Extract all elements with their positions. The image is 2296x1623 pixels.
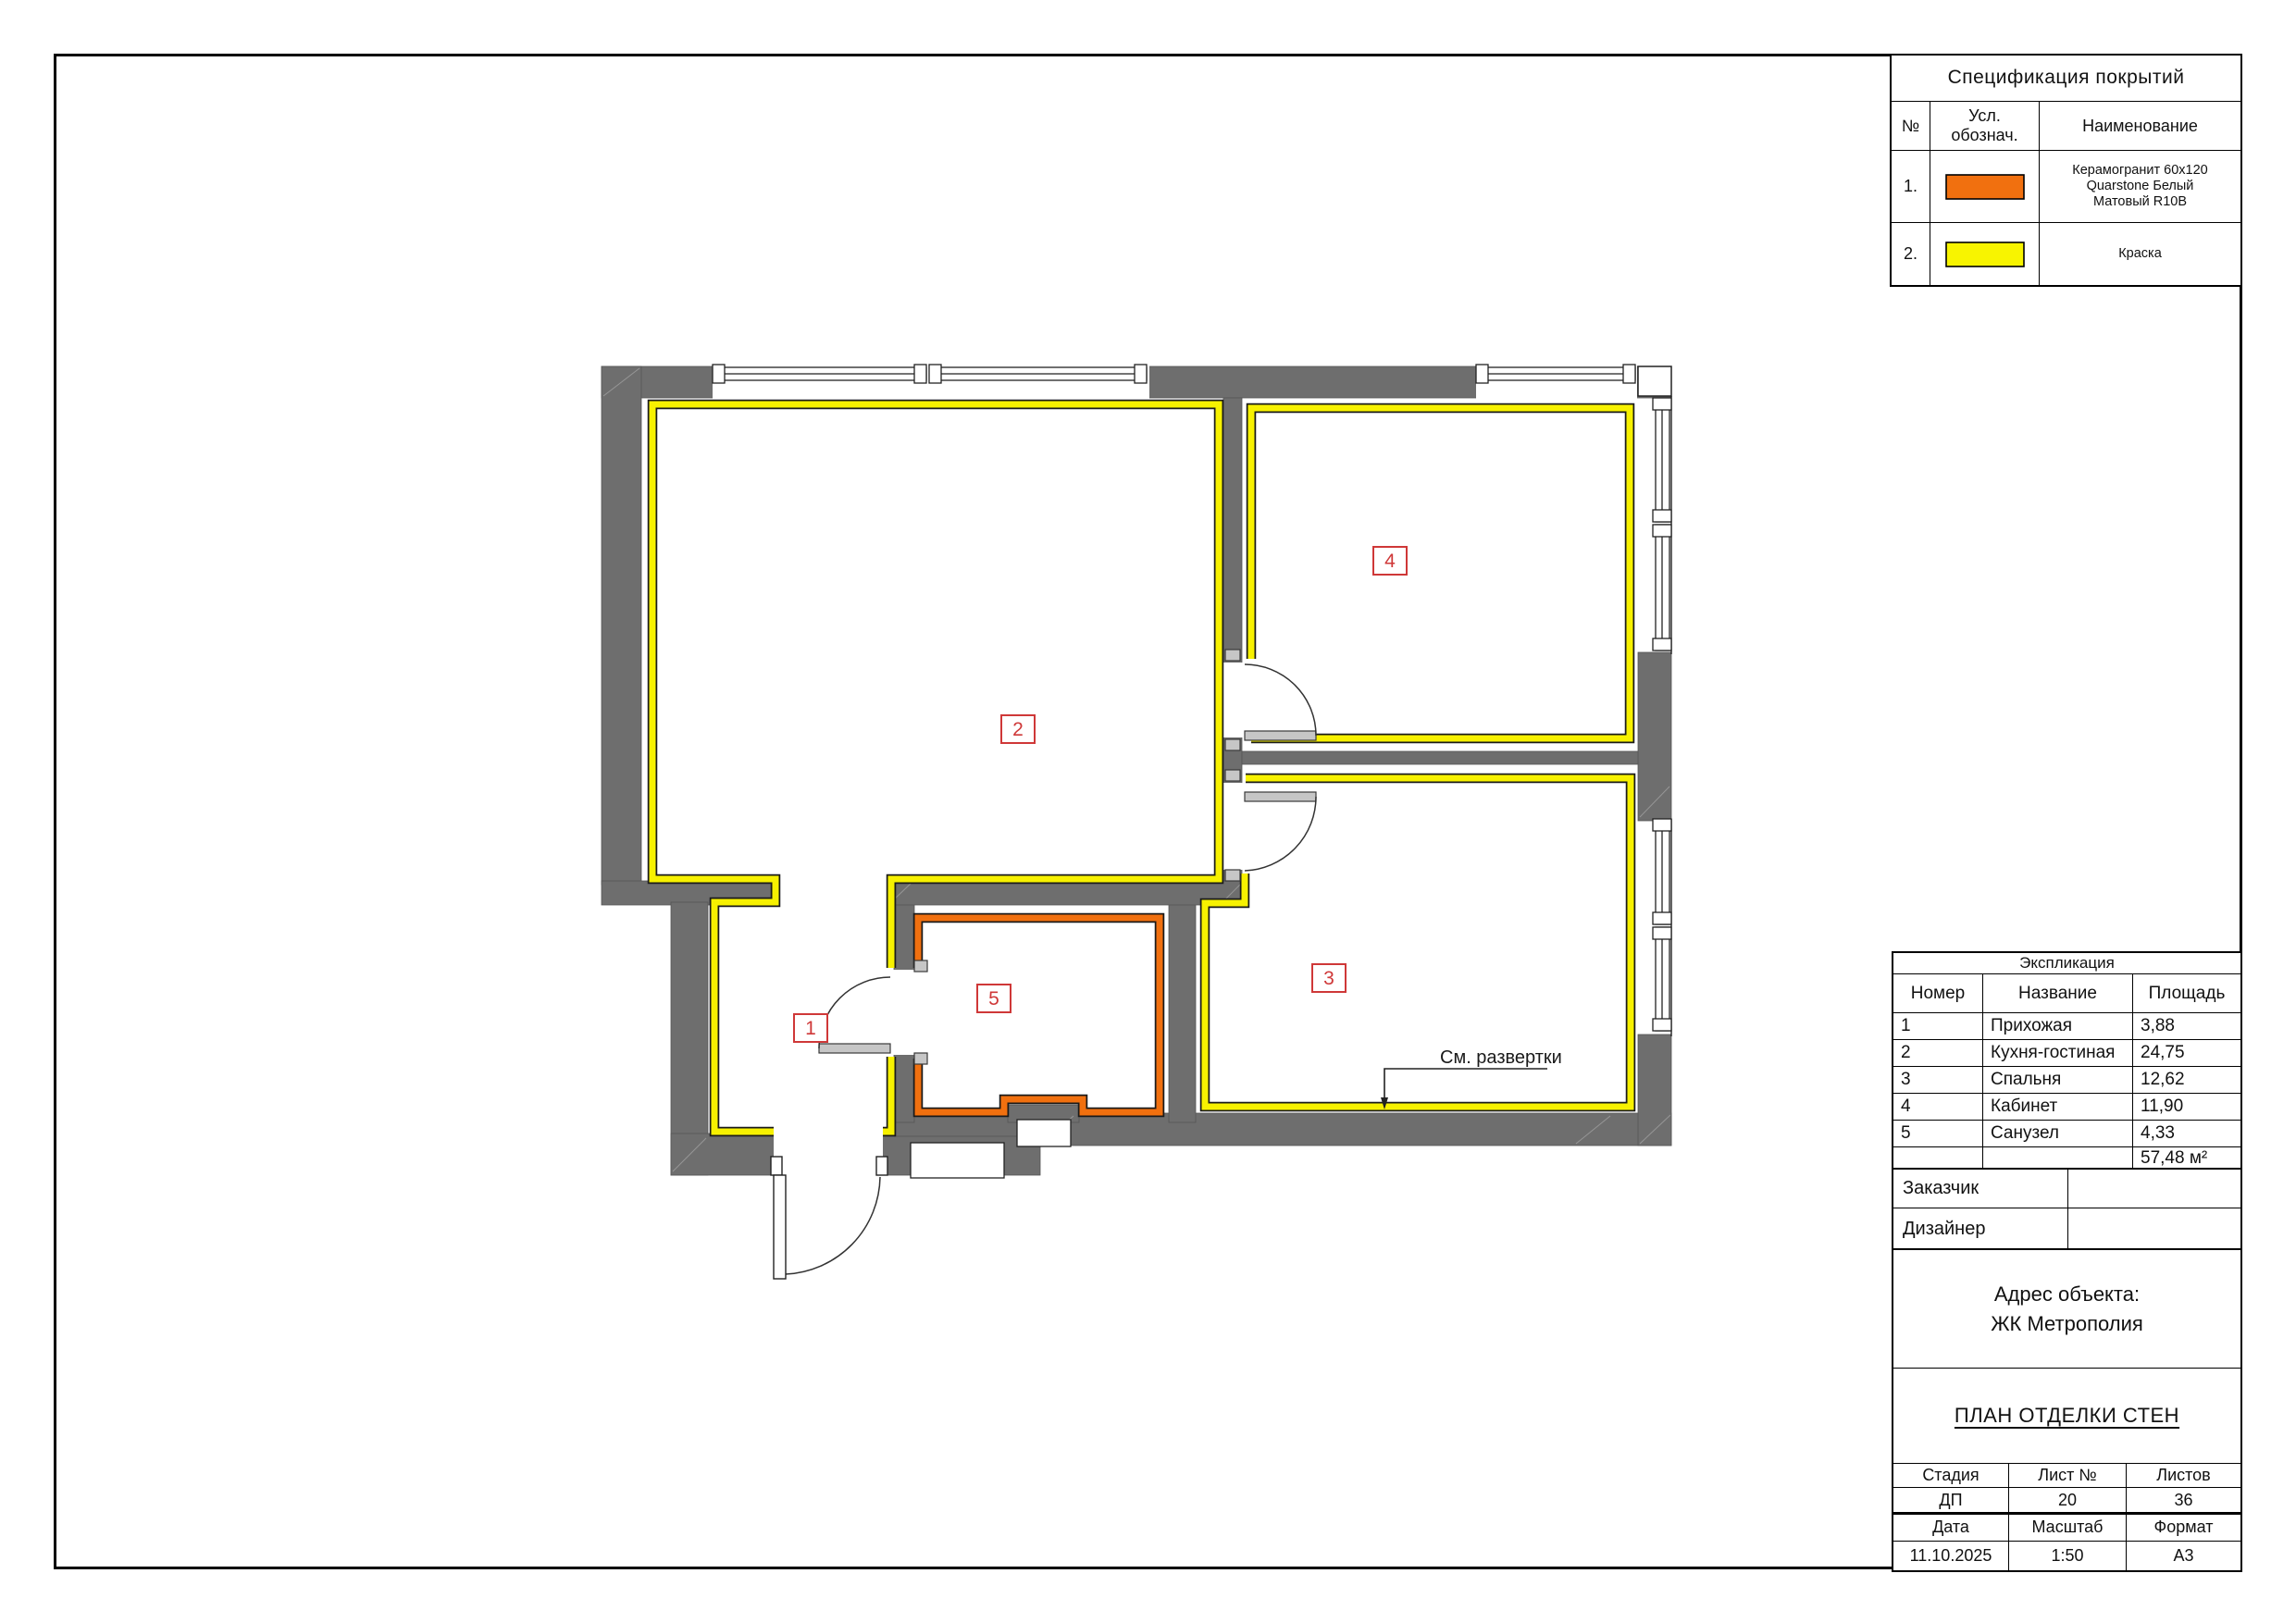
scale-label: Масштаб	[2009, 1512, 2127, 1541]
door-leaf-study	[1245, 731, 1316, 740]
room-name: Санузел	[1983, 1121, 2133, 1147]
spec-name-paint: Краска	[2040, 223, 2240, 285]
explication-table: Номер Название Площадь 1 Прихожая 3,88 2…	[1893, 974, 2240, 1170]
explication-col-number: Номер	[1893, 974, 1983, 1013]
object-address: Адрес объекта: ЖК Метрополия	[1893, 1248, 2240, 1369]
room-name: Прихожая	[1983, 1013, 2133, 1040]
spec-row-no: 2.	[1892, 223, 1930, 285]
door-arc-bathroom	[819, 977, 890, 1048]
sheets-label: Листов	[2127, 1464, 2240, 1488]
room-number: 1	[1893, 1013, 1983, 1040]
room-area: 24,75	[2133, 1040, 2240, 1067]
format-label: Формат	[2127, 1512, 2240, 1541]
door-leaf-entry	[774, 1175, 786, 1279]
door-arc-study	[1245, 664, 1316, 736]
explication-col-area: Площадь	[2133, 974, 2240, 1013]
room-number: 2	[1893, 1040, 1983, 1067]
customer-label: Заказчик	[1893, 1170, 2068, 1208]
door-leaf-bathroom	[819, 1044, 890, 1053]
room-area: 4,33	[2133, 1121, 2240, 1147]
shaft-opening-bathroom	[1017, 1120, 1071, 1146]
door-arc-bedroom	[1245, 797, 1316, 871]
room-area: 11,90	[2133, 1094, 2240, 1121]
svg-text:3: 3	[1323, 968, 1334, 989]
annotation-leader: См. развертки	[1381, 1047, 1562, 1109]
spec-col-symbol: Усл. обознач.	[1930, 102, 2040, 151]
svg-text:2: 2	[1012, 719, 1024, 740]
spec-table-title: Спецификация покрытий	[1892, 56, 2240, 102]
spec-swatch-paint	[1930, 223, 2040, 285]
designer-value	[2068, 1208, 2240, 1250]
svg-text:4: 4	[1384, 551, 1396, 572]
room-tag-bathroom: 5	[977, 985, 1011, 1012]
scale-value: 1:50	[2009, 1542, 2127, 1570]
doors	[771, 650, 1316, 1279]
spec-table: Спецификация покрытий № Усл. обознач. На…	[1890, 54, 2242, 287]
designer-label: Дизайнер	[1893, 1208, 2068, 1250]
shaft-opening-bottom	[911, 1143, 1004, 1178]
drawing-sheet: См. развертки 1 2 3 4 5	[0, 0, 2296, 1623]
room-area: 12,62	[2133, 1067, 2240, 1094]
spec-col-name: Наименование	[2040, 102, 2240, 151]
explication-title: Экспликация	[1893, 953, 2240, 974]
customer-value	[2068, 1170, 2240, 1208]
corner-column	[1638, 366, 1671, 396]
total-area: 57,48 м²	[2133, 1147, 2240, 1170]
date-label: Дата	[1893, 1512, 2009, 1541]
room-tag-study: 4	[1373, 547, 1407, 575]
svg-text:1: 1	[805, 1018, 816, 1039]
date-value: 11.10.2025	[1893, 1542, 2009, 1570]
stage-value: ДП	[1893, 1488, 2009, 1515]
door-arc-entry	[786, 1177, 880, 1274]
people-rows: Заказчик Дизайнер	[1893, 1168, 2240, 1250]
room-name: Кухня-гостиная	[1983, 1040, 2133, 1067]
room-area: 3,88	[2133, 1013, 2240, 1040]
sheet-label: Лист №	[2009, 1464, 2127, 1488]
room-number: 5	[1893, 1121, 1983, 1147]
title-block: Экспликация Номер Название Площадь 1 При…	[1892, 951, 2242, 1572]
stamp-grid: Стадия Лист № Листов ДП 20 36 Дата Масшт…	[1893, 1464, 2240, 1570]
sheet-value: 20	[2009, 1488, 2127, 1515]
drawing-title: ПЛАН ОТДЕЛКИ СТЕН	[1893, 1369, 2240, 1464]
address-label: Адрес объекта:	[1994, 1280, 2140, 1309]
total-row-spacer	[1983, 1147, 2133, 1170]
format-value: А3	[2127, 1542, 2240, 1570]
room-name: Спальня	[1983, 1067, 2133, 1094]
door-leaf-bedroom	[1245, 792, 1316, 801]
address-value: ЖК Метрополия	[1991, 1309, 2143, 1339]
spec-swatch-tile	[1930, 151, 2040, 223]
room-tag-bedroom: 3	[1312, 964, 1346, 992]
svg-text:5: 5	[988, 988, 999, 1010]
spec-row-no: 1.	[1892, 151, 1930, 223]
total-row-spacer	[1893, 1147, 1983, 1170]
explication-col-name: Название	[1983, 974, 2133, 1013]
stage-label: Стадия	[1893, 1464, 2009, 1488]
spec-col-no: №	[1892, 102, 1930, 151]
spec-name-tile: Керамогранит 60х120 Quarstone Белый Мато…	[2040, 151, 2240, 223]
room-tag-hallway: 1	[794, 1014, 827, 1042]
room-number: 3	[1893, 1067, 1983, 1094]
annotation-text: См. развертки	[1440, 1047, 1562, 1068]
sheets-value: 36	[2127, 1488, 2240, 1515]
tile-finish-orange	[918, 918, 1160, 1112]
room-number: 4	[1893, 1094, 1983, 1121]
room-tag-kitchen-living: 2	[1001, 715, 1035, 743]
room-name: Кабинет	[1983, 1094, 2133, 1121]
